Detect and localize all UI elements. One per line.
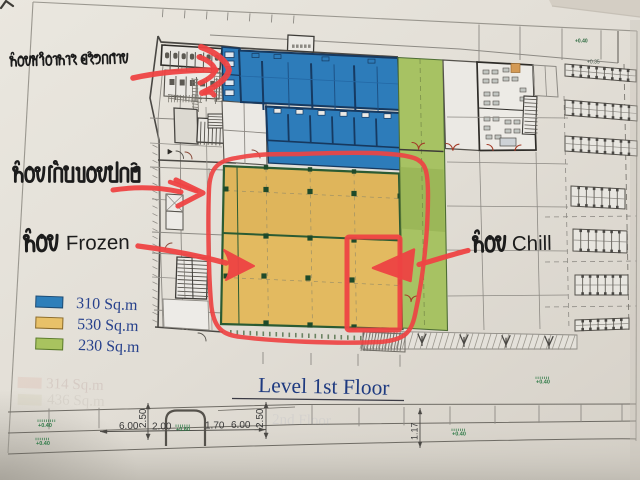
svg-text:+0.40: +0.40 <box>575 39 588 45</box>
svg-text:+0.40: +0.40 <box>36 441 50 447</box>
svg-text:436 Sq.m: 436 Sq.m <box>47 392 105 410</box>
svg-text:Frozen: Frozen <box>66 231 130 255</box>
svg-text:310 Sq.m: 310 Sq.m <box>76 295 138 314</box>
svg-text:2.50: 2.50 <box>138 408 149 428</box>
svg-text:1.17: 1.17 <box>410 422 420 440</box>
svg-text:2.00: 2.00 <box>152 422 172 433</box>
svg-text:1.70: 1.70 <box>205 421 225 432</box>
svg-text:230 Sq.m: 230 Sq.m <box>78 337 140 356</box>
svg-text:6.00: 6.00 <box>119 421 139 432</box>
svg-text:+0.80: +0.80 <box>176 427 190 433</box>
svg-text:530 Sq.m: 530 Sq.m <box>77 316 139 335</box>
svg-text:+0.40: +0.40 <box>536 380 550 386</box>
svg-text:2nd Floor: 2nd Floor <box>272 412 331 429</box>
svg-text:Level 1st Floor: Level 1st Floor <box>258 373 390 400</box>
svg-text:+0.40: +0.40 <box>452 432 466 438</box>
svg-text:+0.40: +0.40 <box>38 423 52 429</box>
svg-text:Chill: Chill <box>512 232 552 256</box>
svg-text:+0.35: +0.35 <box>587 60 600 66</box>
svg-text:2.50: 2.50 <box>255 408 266 428</box>
svg-text:6.00: 6.00 <box>231 420 251 431</box>
